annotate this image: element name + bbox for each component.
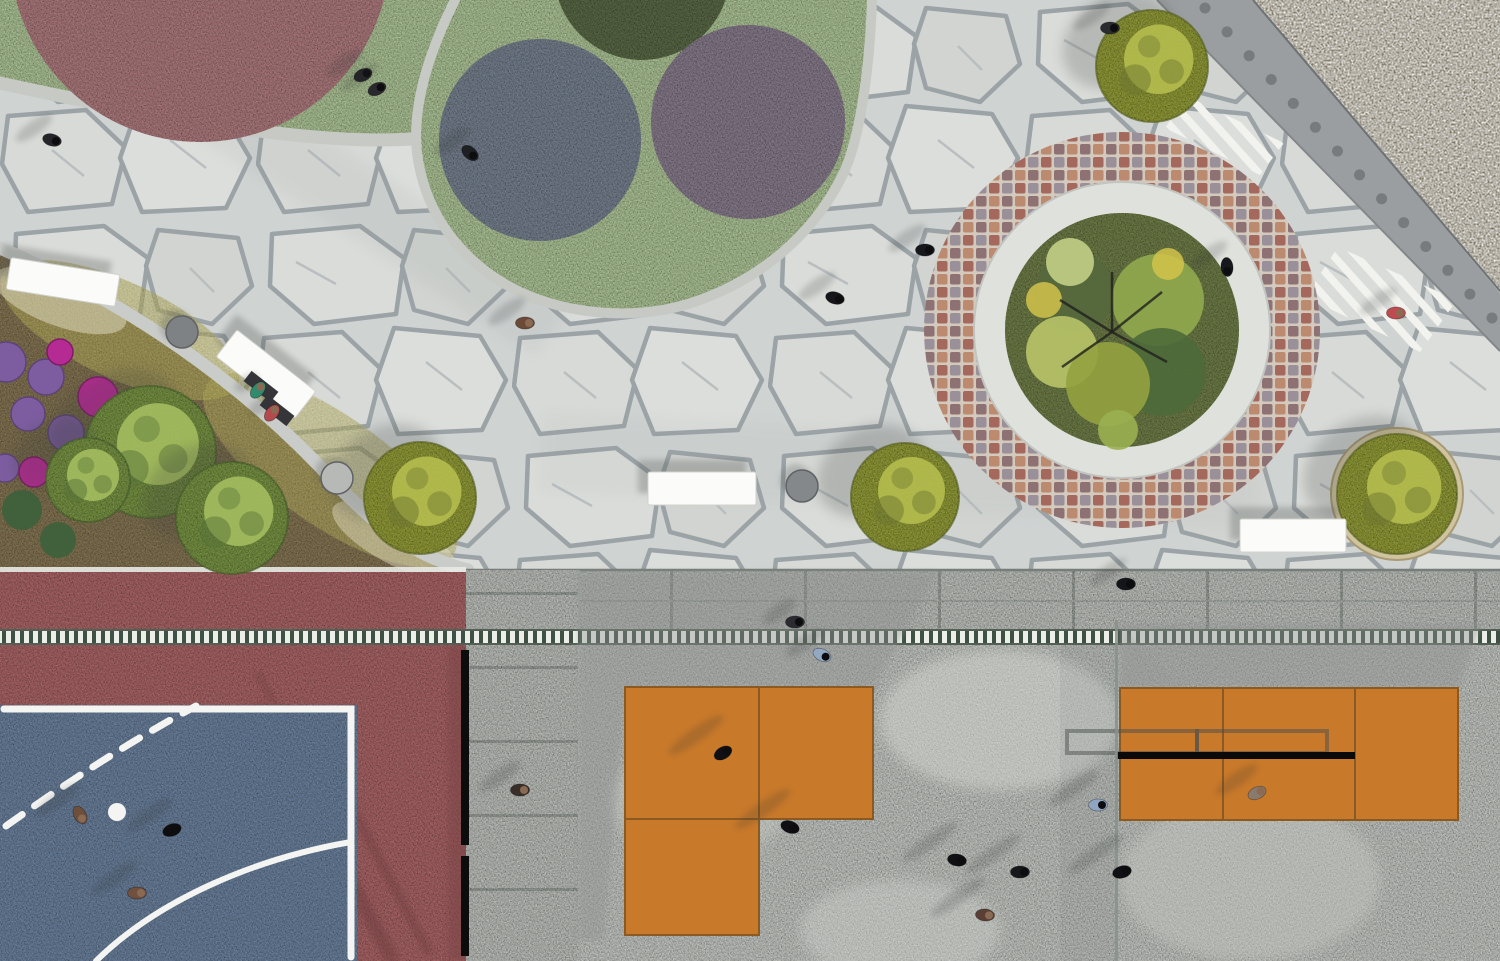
landscape-site-plan [0,0,1500,961]
person-head [957,857,965,865]
retaining-wall-line [461,856,469,956]
person-head [1126,580,1134,588]
bench-bar-black [1117,752,1355,759]
ring-flower-patch [1098,410,1138,450]
ring-shrub [1046,238,1094,286]
band-stud [1266,74,1277,85]
person-head [377,83,385,91]
tree-canopy-shade [93,475,111,493]
band-stud [1487,313,1498,324]
bin-body [786,470,818,502]
tree-canopy-shade [892,467,914,489]
person-head [257,383,265,391]
band-stud [1464,289,1475,300]
ring-flower-patch [1026,282,1062,318]
person-head [271,406,279,414]
person-head [525,319,533,327]
retaining-wall-line [461,650,469,845]
person-head [835,295,843,303]
band-stud [1288,98,1299,109]
tree-canopy-shade [874,495,904,525]
site-plan-canvas [0,0,1500,961]
bin-body [166,316,198,348]
band-stud [1244,50,1255,61]
person-head [790,824,798,832]
bin-body [321,462,353,494]
glass-canopy-tint [1060,644,1117,961]
person-head [1223,267,1231,275]
tree-canopy-shade [1159,59,1184,84]
person-head [1122,867,1130,875]
ring-flower-patch [1152,248,1184,280]
scene-root [0,0,1500,961]
person-head [822,653,830,661]
band-stud [1398,217,1409,228]
person-head [1020,868,1028,876]
bench-seat [1240,519,1346,552]
person-head [52,137,60,145]
person-head [985,911,993,919]
tree-canopy-shade [1138,35,1160,57]
tree-canopy-shade [406,467,428,489]
band-stud [1376,193,1387,204]
orange-canopy-L-top [625,687,873,819]
band-stud [1310,122,1321,133]
tree-canopy-shade [427,491,452,516]
glass-canopy-edge [1115,620,1118,961]
tree-canopy-shade [64,479,88,503]
bench-seat [648,472,756,505]
person-head [722,747,730,755]
tree-canopy-shade [1405,487,1431,513]
person-head [1110,24,1118,32]
purple-rubber-circle [651,25,845,219]
tree-canopy-shade [1362,492,1396,526]
tree-canopy-shade [912,491,936,515]
band-stud [1420,241,1431,252]
tree-canopy-shade [218,487,240,509]
tree-canopy-shade [78,457,95,474]
person-head [520,786,528,794]
band-stud [1442,265,1453,276]
person-head [137,889,145,897]
bench [1230,507,1346,552]
concrete-blotch [1120,800,1380,960]
person-head [1257,787,1265,795]
person-head [78,814,86,822]
tree-canopy-shade [200,516,231,547]
gray-rubber-circle [439,39,641,241]
band-stud [1200,3,1211,14]
person-head [469,152,477,160]
tree-canopy-shade [1120,64,1151,95]
tree-canopy-shade [1382,461,1406,485]
person-head [925,246,933,254]
person-head [1396,309,1404,317]
person-head [795,618,803,626]
tree-canopy-shade [388,496,419,527]
dark-bush [2,490,42,530]
magenta-bush [47,339,73,365]
orange-canopy-L-bottom [625,819,759,935]
dark-bush [40,522,76,558]
person-head [172,825,180,833]
tree-canopy-shade [239,511,264,536]
person-head [1098,801,1106,809]
bench [638,460,756,505]
band-stud [1332,146,1343,157]
band-stud [1222,26,1233,37]
tree-canopy-shade [134,416,160,442]
band-stud [1354,169,1365,180]
court-ball [108,803,126,821]
slab-walk-strip [466,570,578,961]
